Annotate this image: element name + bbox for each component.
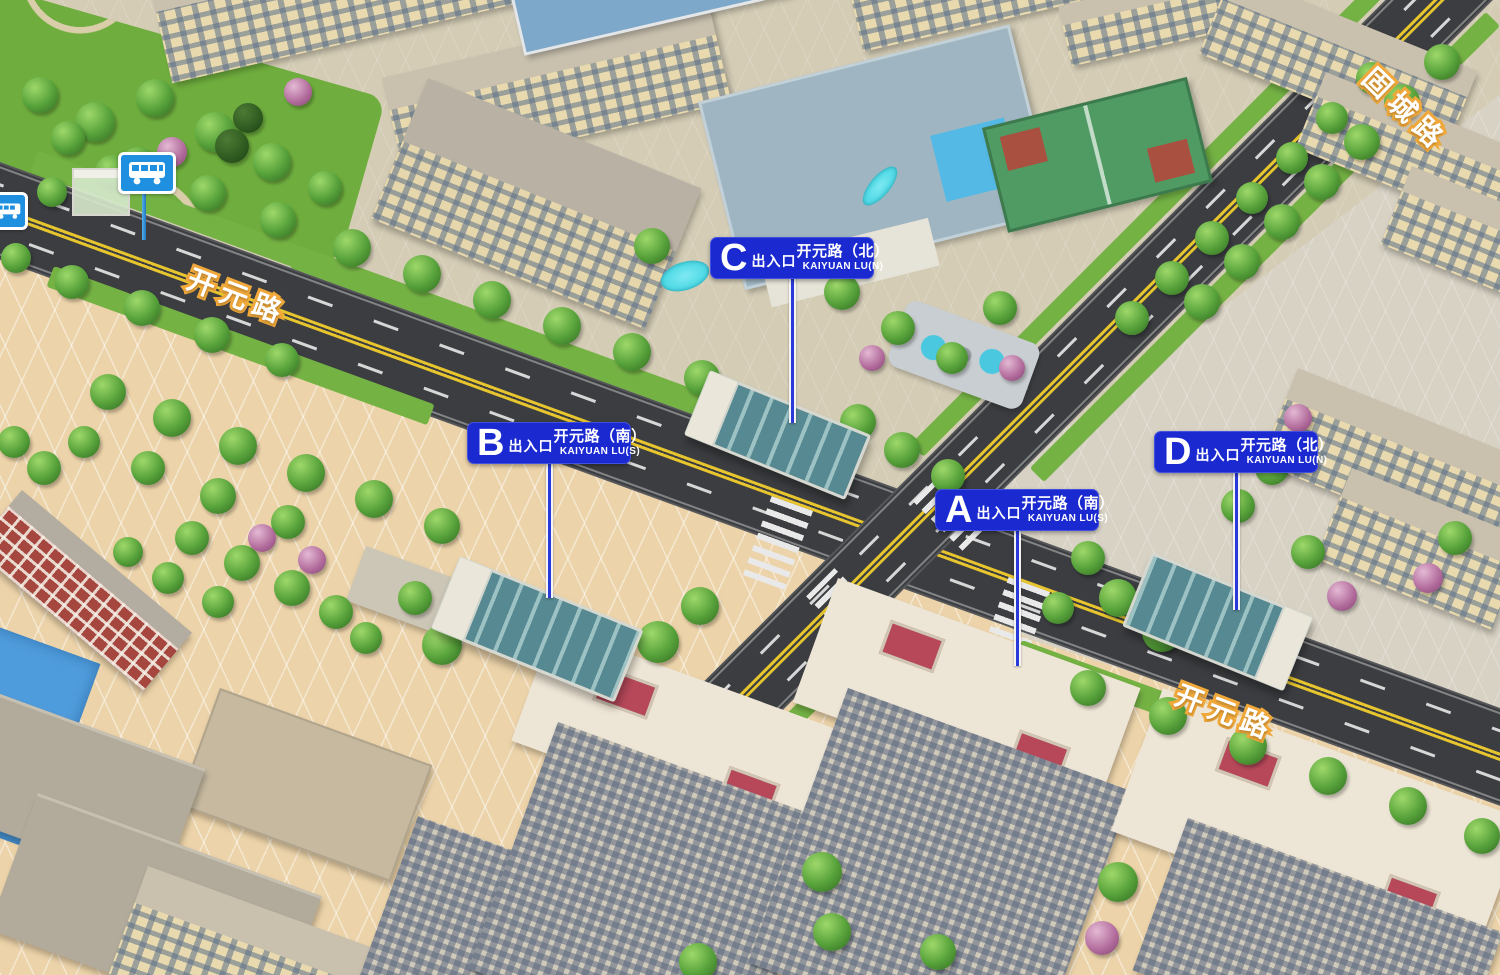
- tree: [350, 622, 382, 654]
- road-name-en: KAIYUAN LU(S): [1021, 513, 1114, 525]
- tree: [424, 508, 460, 544]
- entrance-letter: C: [720, 241, 747, 275]
- flowering-tree: [859, 345, 885, 371]
- flowering-tree: [1413, 563, 1443, 593]
- tree: [1184, 284, 1220, 320]
- tree: [1291, 535, 1325, 569]
- tree: [136, 79, 174, 117]
- flowering-tree: [284, 78, 312, 106]
- tree: [884, 432, 920, 468]
- tree: [190, 175, 226, 211]
- entrance-sign-b[interactable]: B 出入口 开元路（南） KAIYUAN LU(S): [467, 422, 631, 464]
- tree: [1, 243, 31, 273]
- tree: [308, 171, 342, 205]
- tree: [1389, 787, 1427, 825]
- tree: [398, 581, 432, 615]
- tree: [1071, 541, 1105, 575]
- entrance-label: 出入口: [1195, 445, 1240, 465]
- tree: [51, 121, 85, 155]
- tree: [153, 399, 191, 437]
- flowering-tree: [999, 355, 1025, 381]
- tree: [1316, 102, 1348, 134]
- tree: [333, 229, 371, 267]
- bus-stop-pole: [142, 188, 146, 240]
- sign-plate: D 出入口 开元路（北） KAIYUAN LU(N): [1154, 431, 1318, 473]
- tree: [219, 427, 257, 465]
- flowering-tree: [1085, 921, 1119, 955]
- tree: [1115, 301, 1149, 335]
- tree: [881, 311, 915, 345]
- bus-stop-sign-2: [0, 192, 28, 230]
- tree: [1042, 592, 1074, 624]
- tree: [543, 307, 581, 345]
- tree: [1098, 862, 1138, 902]
- tree: [1438, 521, 1472, 555]
- tree: [813, 913, 851, 951]
- tree: [1236, 182, 1268, 214]
- entrance-sign-d[interactable]: D 出入口 开元路（北） KAIYUAN LU(N): [1154, 431, 1318, 473]
- tree: [1304, 164, 1340, 200]
- tree: [271, 505, 305, 539]
- tree: [68, 426, 100, 458]
- tree: [113, 537, 143, 567]
- tree: [931, 459, 965, 493]
- sign-plate: B 出入口 开元路（南） KAIYUAN LU(S): [467, 422, 631, 464]
- entrance-label: 出入口: [751, 251, 796, 271]
- tree: [200, 478, 236, 514]
- tree: [55, 265, 89, 299]
- tree: [1424, 44, 1460, 80]
- flowering-tree: [298, 546, 326, 574]
- road-name-en: KAIYUAN LU(N): [796, 261, 889, 273]
- sign-plate: C 出入口 开元路（北） KAIYUAN LU(N): [710, 237, 874, 279]
- entrance-letter: B: [477, 426, 504, 460]
- entrance-letter: D: [1164, 435, 1191, 469]
- tree: [1155, 261, 1189, 295]
- tree: [319, 595, 353, 629]
- tree: [194, 317, 230, 353]
- flowering-tree: [248, 524, 276, 552]
- tree: [131, 451, 165, 485]
- tree: [613, 333, 651, 371]
- tree: [983, 291, 1017, 325]
- tree: [175, 521, 209, 555]
- road-name-cn: 开元路（北）: [796, 243, 889, 261]
- tree: [202, 586, 234, 618]
- tree: [1264, 204, 1300, 240]
- map-canvas: 开元路 固城路 开元路 A 出入口 开元路（南） KAIYUAN LU(S) B…: [0, 0, 1500, 975]
- tree: [1309, 757, 1347, 795]
- tree: [1276, 142, 1308, 174]
- tree: [1224, 244, 1260, 280]
- tree: [634, 228, 670, 264]
- tree: [233, 103, 263, 133]
- entrance-label: 出入口: [976, 503, 1021, 523]
- road-name-cn: 开元路（北）: [1240, 437, 1333, 455]
- entrance-label: 出入口: [508, 436, 553, 456]
- tree: [90, 374, 126, 410]
- tree: [124, 290, 160, 326]
- sign-pole: [789, 275, 796, 423]
- bus-stop-sign: [118, 152, 176, 194]
- tree: [355, 480, 393, 518]
- tree: [265, 343, 299, 377]
- tree: [1344, 124, 1380, 160]
- road-name-cn: 开元路（南）: [553, 428, 646, 446]
- tree: [260, 202, 296, 238]
- tree: [1464, 818, 1500, 854]
- bus-icon: [0, 202, 21, 220]
- tree: [152, 562, 184, 594]
- tree: [1195, 221, 1229, 255]
- tree: [920, 934, 956, 970]
- tree: [936, 342, 968, 374]
- sign-pole: [1233, 469, 1240, 610]
- tree: [37, 177, 67, 207]
- sign-pole: [546, 460, 553, 598]
- tree: [473, 281, 511, 319]
- entrance-sign-a[interactable]: A 出入口 开元路（南） KAIYUAN LU(S): [935, 489, 1099, 531]
- tree: [802, 852, 842, 892]
- tree: [22, 77, 58, 113]
- sign-pole: [1014, 527, 1021, 666]
- tree: [287, 454, 325, 492]
- tree: [1070, 670, 1106, 706]
- tree: [215, 129, 249, 163]
- tree: [679, 943, 717, 975]
- road-name-en: KAIYUAN LU(N): [1240, 455, 1333, 467]
- bus-icon: [128, 160, 166, 186]
- tree: [27, 451, 61, 485]
- flowering-tree: [1284, 404, 1312, 432]
- tree: [274, 570, 310, 606]
- tree: [253, 143, 291, 181]
- road-name-cn: 开元路（南）: [1021, 495, 1114, 513]
- tree: [824, 274, 860, 310]
- entrance-letter: A: [945, 493, 972, 527]
- sign-plate: A 出入口 开元路（南） KAIYUAN LU(S): [935, 489, 1099, 531]
- tree: [637, 621, 679, 663]
- road-name-en: KAIYUAN LU(S): [553, 446, 646, 458]
- tree: [403, 255, 441, 293]
- entrance-sign-c[interactable]: C 出入口 开元路（北） KAIYUAN LU(N): [710, 237, 874, 279]
- flowering-tree: [1327, 581, 1357, 611]
- tree: [681, 587, 719, 625]
